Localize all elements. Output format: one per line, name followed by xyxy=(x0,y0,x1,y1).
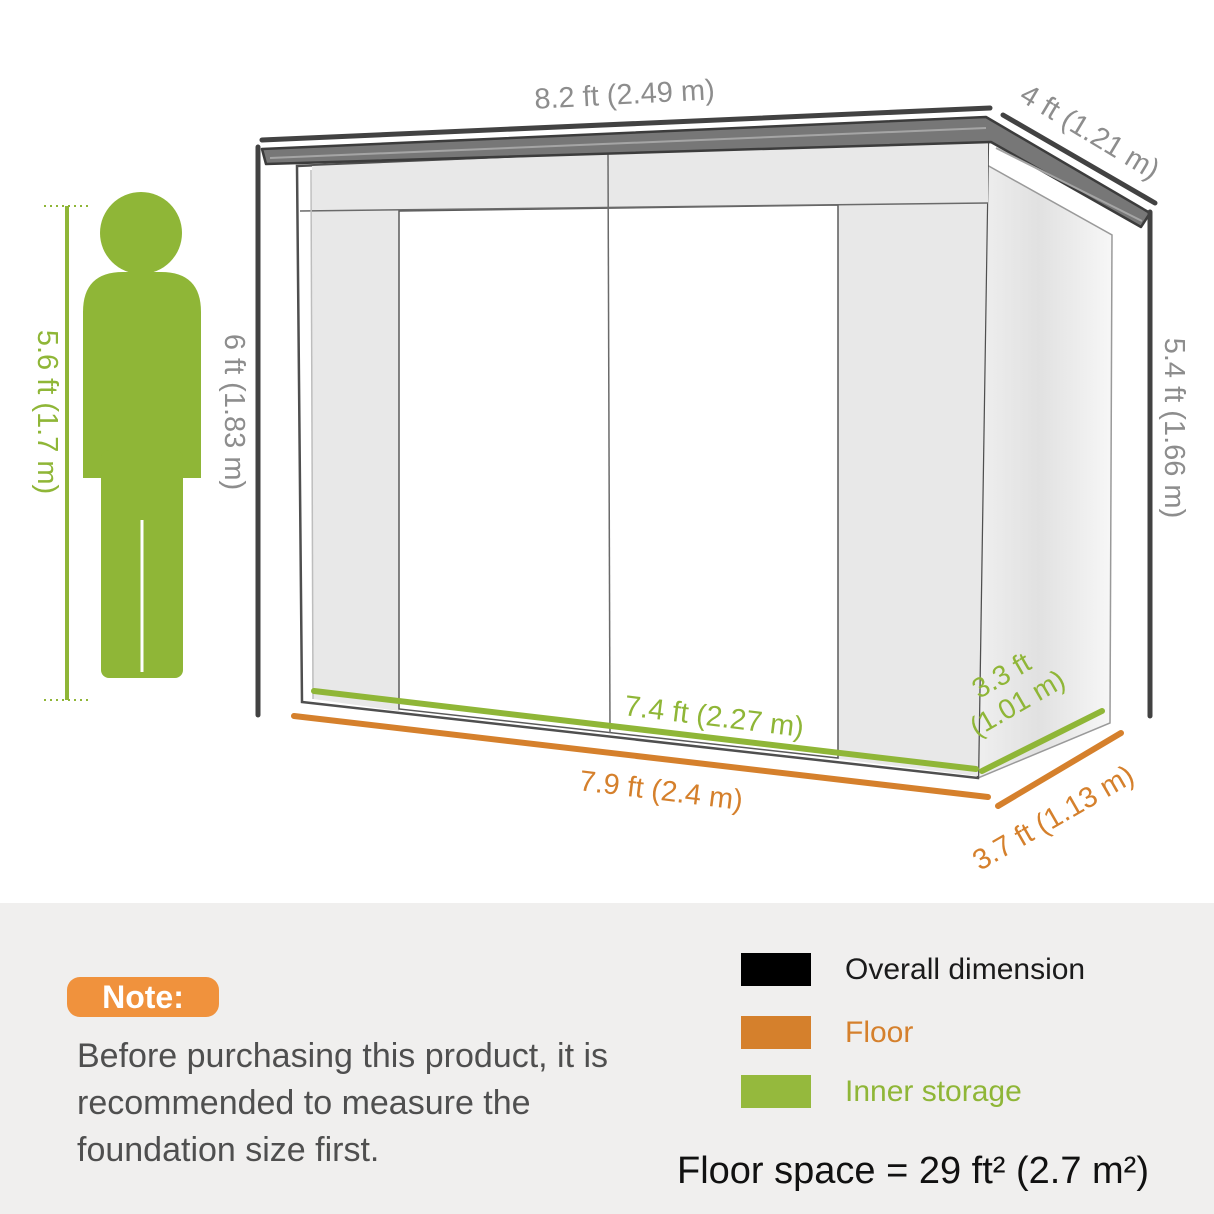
legend-item-inner-storage: Inner storage xyxy=(741,1075,1022,1108)
floor-width-label: 7.9 ft (2.4 m) xyxy=(578,765,745,817)
inner-storage-swatch xyxy=(741,1075,811,1108)
shed-right-pillar xyxy=(838,203,987,776)
height-right-label: 5.4 ft (1.66 m) xyxy=(1158,338,1190,519)
roof-width-label: 8.2 ft (2.49 m) xyxy=(534,74,716,115)
shed-left-pillar xyxy=(312,209,399,711)
floor-space-text: Floor space = 29 ft² (2.7 m²) xyxy=(677,1150,1149,1193)
note-badge: Note: xyxy=(67,977,219,1017)
shed-doors xyxy=(399,205,838,758)
shed-dimension-diagram: 5.6 ft (1.7 m) xyxy=(0,0,1214,903)
overall-dimension-label: Overall dimension xyxy=(845,953,1085,987)
floor-swatch xyxy=(741,1016,811,1049)
product-dimension-image: 5.6 ft (1.7 m) xyxy=(0,0,1214,1214)
legend-item-overall: Overall dimension xyxy=(741,953,1085,986)
info-panel: Note: Before purchasing this product, it… xyxy=(0,903,1214,1214)
person-height-label: 5.6 ft (1.7 m) xyxy=(31,330,63,494)
legend-item-floor: Floor xyxy=(741,1016,913,1049)
height-left-label: 6 ft (1.83 m) xyxy=(218,334,250,490)
note-badge-label: Note: xyxy=(102,979,184,1016)
person-head xyxy=(100,192,182,274)
person-torso xyxy=(83,272,201,478)
overall-dimension-swatch xyxy=(741,953,811,986)
inner-storage-label: Inner storage xyxy=(845,1075,1022,1109)
note-text: Before purchasing this product, it is re… xyxy=(77,1033,637,1174)
person-figure xyxy=(83,192,201,678)
floor-depth-label: 3.7 ft (1.13 m) xyxy=(967,759,1139,877)
floor-label: Floor xyxy=(845,1016,913,1050)
